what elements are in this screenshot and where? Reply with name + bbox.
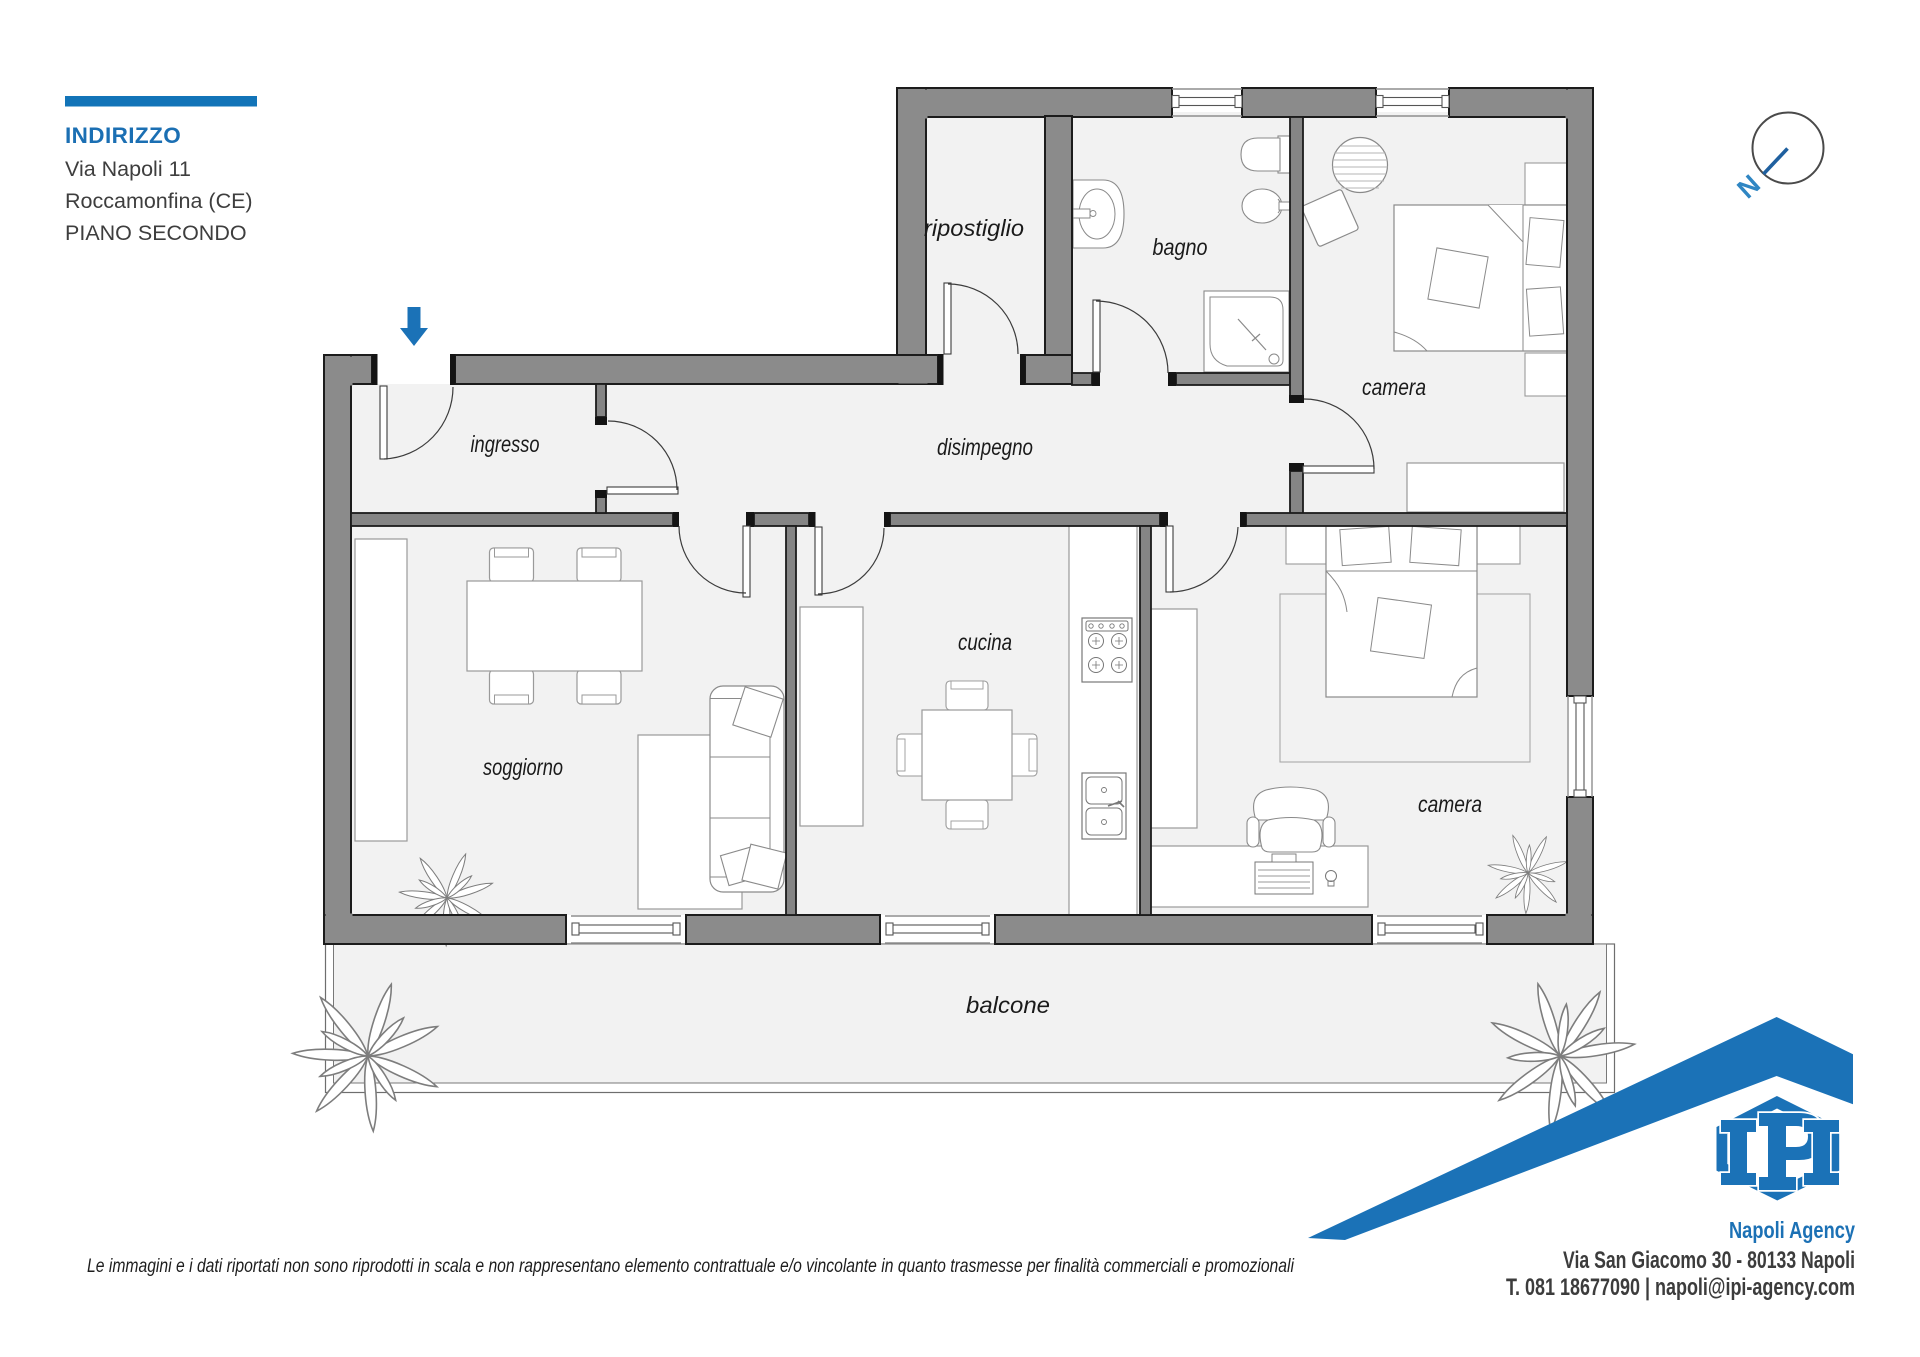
svg-text:Via San Giacomo 30 - 80133 Nap: Via San Giacomo 30 - 80133 Napoli (1563, 1247, 1855, 1274)
svg-text:ripostiglio: ripostiglio (924, 215, 1024, 241)
svg-text:ingresso: ingresso (471, 431, 540, 457)
svg-text:Roccamonfina (CE): Roccamonfina (CE) (65, 189, 253, 213)
svg-text:camera: camera (1418, 791, 1482, 817)
svg-text:cucina: cucina (958, 629, 1012, 655)
svg-text:N: N (1731, 169, 1766, 204)
svg-text:Via Napoli 11: Via Napoli 11 (65, 157, 191, 181)
svg-text:PIANO SECONDO: PIANO SECONDO (65, 221, 247, 245)
svg-text:INDIRIZZO: INDIRIZZO (65, 123, 181, 148)
svg-text:camera: camera (1362, 374, 1426, 400)
svg-text:Le immagini e i dati riportati: Le immagini e i dati riportati non sono … (87, 1255, 1295, 1277)
svg-text:soggiorno: soggiorno (483, 754, 563, 780)
svg-text:Napoli Agency: Napoli Agency (1729, 1217, 1855, 1243)
svg-text:balcone: balcone (966, 992, 1050, 1018)
svg-text:disimpegno: disimpegno (937, 434, 1033, 460)
svg-text:T. 081 18677090 | napoli@ipi-a: T. 081 18677090 | napoli@ipi-agency.com (1506, 1274, 1855, 1301)
svg-text:bagno: bagno (1153, 234, 1208, 260)
